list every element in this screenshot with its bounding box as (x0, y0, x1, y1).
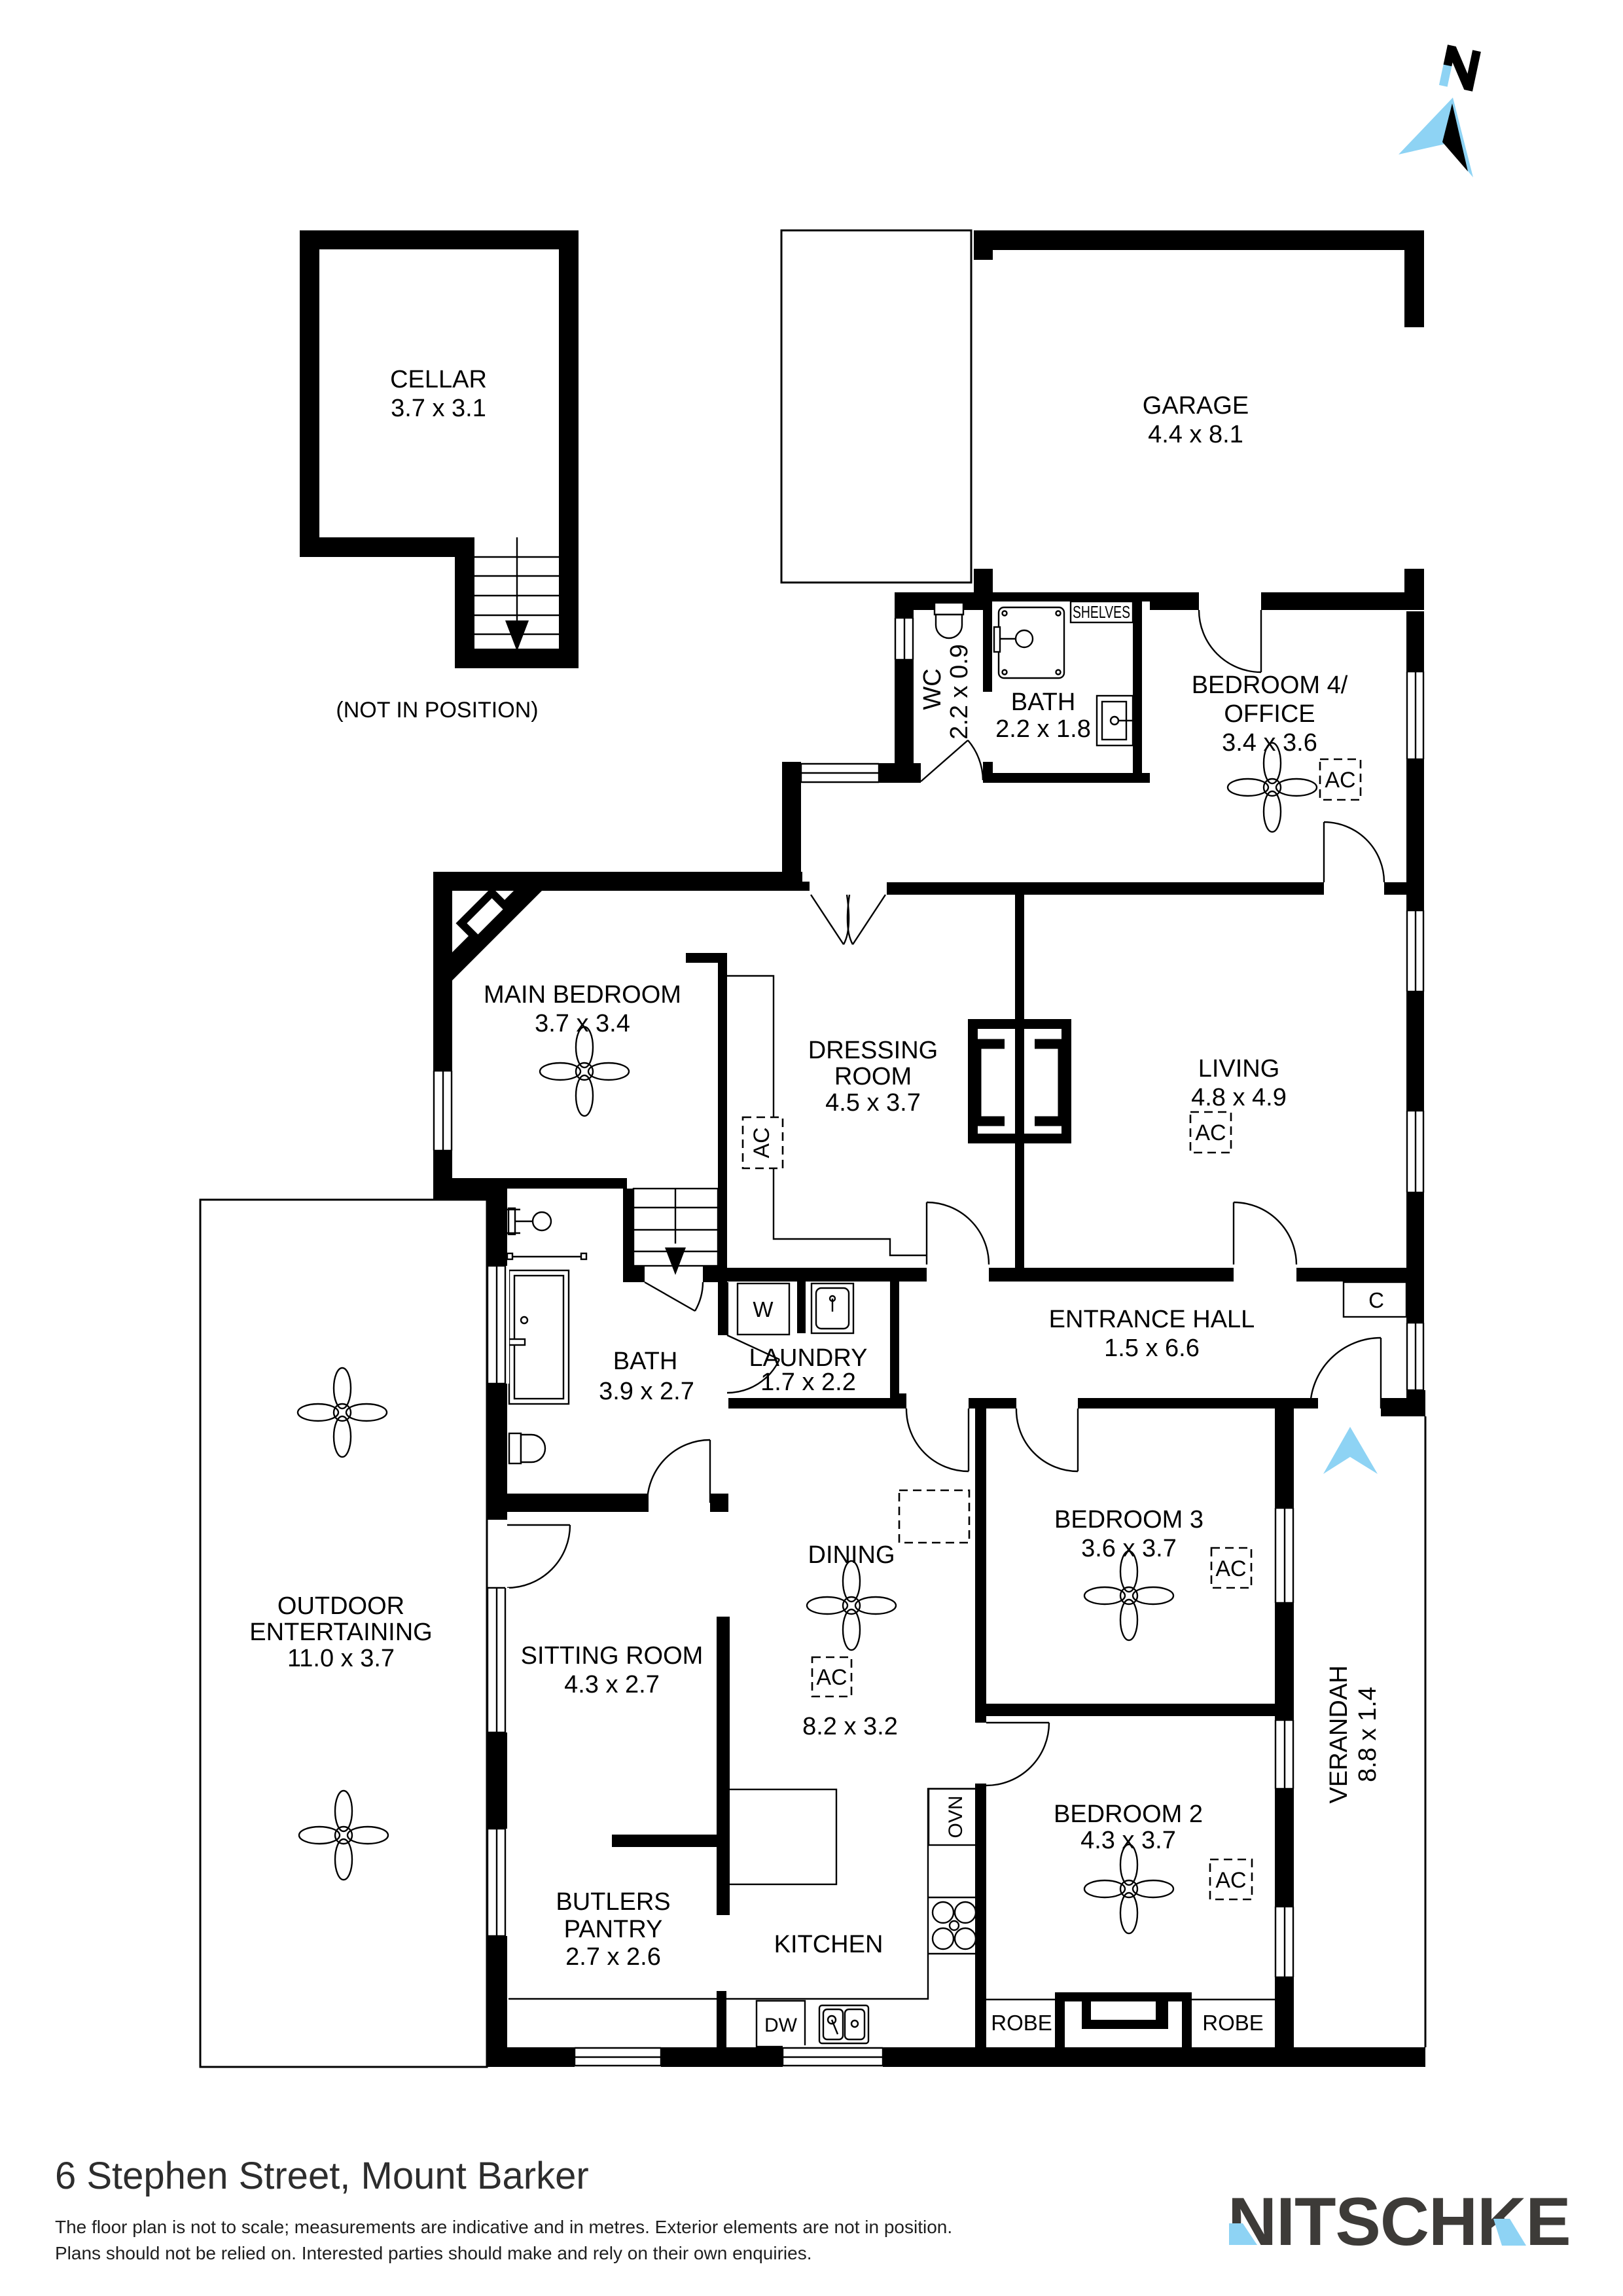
svg-text:LIVING: LIVING (1198, 1055, 1280, 1083)
svg-text:ENTRANCE HALL: ENTRANCE HALL (1049, 1306, 1255, 1333)
svg-text:KITCHEN: KITCHEN (774, 1931, 883, 1958)
svg-text:2.7 x 2.6: 2.7 x 2.6 (565, 1943, 661, 1971)
svg-text:ROBE: ROBE (991, 2011, 1052, 2035)
svg-text:BUTLERS: BUTLERS (556, 1888, 670, 1916)
svg-text:BATH: BATH (1011, 689, 1076, 716)
svg-text:AC: AC (1195, 1121, 1226, 1145)
svg-text:1.7 x 2.2: 1.7 x 2.2 (760, 1369, 856, 1396)
svg-text:WC: WC (919, 668, 946, 709)
svg-text:AC: AC (1325, 768, 1355, 793)
svg-text:The floor plan is not to scale: The floor plan is not to scale; measurem… (55, 2217, 952, 2237)
svg-text:4.3 x 2.7: 4.3 x 2.7 (564, 1671, 660, 1698)
svg-text:AC: AC (749, 1127, 774, 1158)
svg-text:6 Stephen Street, Mount Barker: 6 Stephen Street, Mount Barker (55, 2155, 589, 2197)
svg-text:SITTING ROOM: SITTING ROOM (521, 1642, 704, 1670)
svg-text:MAIN BEDROOM: MAIN BEDROOM (484, 981, 681, 1009)
svg-text:PANTRY: PANTRY (564, 1916, 663, 1943)
svg-text:ROBE: ROBE (1202, 2011, 1264, 2035)
svg-text:CELLAR: CELLAR (390, 366, 487, 393)
svg-text:AC: AC (1215, 1868, 1246, 1893)
svg-text:AC: AC (816, 1665, 847, 1690)
svg-text:4.8 x 4.9: 4.8 x 4.9 (1191, 1084, 1287, 1111)
svg-text:2.2 x 0.9: 2.2 x 0.9 (946, 644, 973, 740)
svg-text:OUTDOOR: OUTDOOR (277, 1592, 404, 1620)
svg-text:ENTERTAINING: ENTERTAINING (249, 1619, 432, 1646)
svg-text:8.2 x 3.2: 8.2 x 3.2 (802, 1713, 898, 1740)
svg-text:3.7 x 3.4: 3.7 x 3.4 (535, 1010, 630, 1037)
svg-text:3.6 x 3.7: 3.6 x 3.7 (1081, 1535, 1177, 1562)
svg-text:OVN: OVN (945, 1795, 967, 1838)
svg-text:OFFICE: OFFICE (1224, 700, 1315, 728)
svg-text:4.5 x 3.7: 4.5 x 3.7 (825, 1089, 921, 1117)
svg-text:AC: AC (1215, 1556, 1246, 1581)
svg-text:NITSCHKE: NITSCHKE (1228, 2184, 1571, 2260)
svg-text:8.8 x 1.4: 8.8 x 1.4 (1354, 1687, 1382, 1782)
svg-text:BEDROOM 3: BEDROOM 3 (1054, 1506, 1204, 1534)
svg-text:2.2 x 1.8: 2.2 x 1.8 (995, 715, 1091, 743)
svg-text:BEDROOM 2: BEDROOM 2 (1054, 1801, 1203, 1828)
svg-text:(NOT IN POSITION): (NOT IN POSITION) (336, 698, 538, 723)
svg-text:Plans should not be relied on.: Plans should not be relied on. Intereste… (55, 2243, 811, 2263)
svg-text:DINING: DINING (808, 1541, 895, 1569)
svg-text:SHELVES: SHELVES (1073, 602, 1130, 622)
svg-text:4.3 x 3.7: 4.3 x 3.7 (1080, 1827, 1176, 1854)
svg-text:1.5 x 6.6: 1.5 x 6.6 (1104, 1335, 1200, 1362)
svg-text:11.0 x 3.7: 11.0 x 3.7 (287, 1645, 395, 1672)
svg-text:ROOM: ROOM (834, 1063, 912, 1090)
svg-text:W: W (753, 1297, 774, 1321)
svg-text:3.9 x 2.7: 3.9 x 2.7 (599, 1378, 694, 1405)
svg-text:LAUNDRY: LAUNDRY (749, 1344, 868, 1372)
svg-text:DRESSING: DRESSING (808, 1037, 938, 1064)
svg-text:DW: DW (764, 2015, 798, 2036)
svg-text:C: C (1368, 1288, 1384, 1312)
svg-text:4.4 x 8.1: 4.4 x 8.1 (1148, 421, 1243, 448)
svg-text:BEDROOM 4/: BEDROOM 4/ (1192, 672, 1348, 699)
svg-text:GARAGE: GARAGE (1143, 392, 1249, 420)
svg-text:BATH: BATH (613, 1348, 678, 1375)
svg-text:3.7 x 3.1: 3.7 x 3.1 (391, 395, 486, 422)
svg-text:VERANDAH: VERANDAH (1325, 1665, 1353, 1803)
